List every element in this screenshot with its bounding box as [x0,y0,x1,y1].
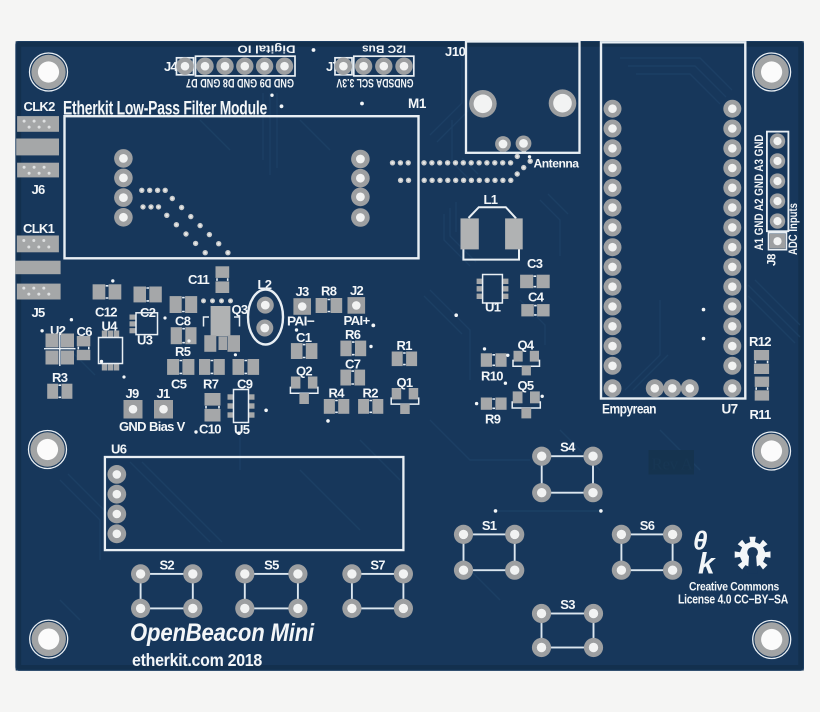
svg-text:R4: R4 [329,386,346,401]
svg-text:CLK2: CLK2 [24,99,56,114]
svg-text:M1: M1 [408,96,427,111]
svg-text:C8: C8 [175,314,191,329]
svg-text:R11: R11 [750,407,772,422]
svg-text:License 4.0 CC−BY−SA: License 4.0 CC−BY−SA [678,592,788,606]
svg-text:U1: U1 [485,300,501,315]
svg-text:C11: C11 [188,272,210,287]
svg-text:U6: U6 [111,442,127,457]
svg-text:J5: J5 [32,305,46,320]
svg-text:R2: R2 [363,386,379,401]
svg-text:Antenna: Antenna [534,157,580,171]
svg-text:Rev A: Rev A [652,455,694,474]
svg-text:GNDSDA SCL 3.3V: GNDSDA SCL 3.3V [337,76,414,90]
svg-text:R6: R6 [345,327,361,342]
svg-text:J1: J1 [157,386,171,401]
svg-text:Creative Commons: Creative Commons [689,579,780,593]
svg-text:R9: R9 [485,412,501,427]
svg-text:k: k [698,548,716,581]
svg-text:PAI+: PAI+ [344,313,371,328]
svg-text:CLK1: CLK1 [23,221,55,236]
svg-text:R3: R3 [52,370,68,385]
svg-text:GND: GND [119,419,146,434]
svg-text:J10: J10 [445,44,466,59]
svg-text:S5: S5 [264,558,279,573]
svg-text:C7: C7 [345,356,361,371]
svg-text:J3: J3 [296,284,310,299]
svg-text:U5: U5 [234,422,250,437]
svg-text:J9: J9 [126,386,140,401]
svg-text:I2C Bus: I2C Bus [362,43,406,55]
svg-text:Q5: Q5 [518,378,534,393]
svg-text:J2: J2 [350,283,364,298]
svg-text:S4: S4 [560,440,576,455]
svg-text:C5: C5 [171,377,187,392]
svg-text:A1 GND A2 GND A3 GND: A1 GND A2 GND A3 GND [754,135,766,251]
svg-text:S2: S2 [159,558,174,573]
svg-text:R7: R7 [203,377,219,392]
svg-text:PAI−: PAI− [287,314,315,329]
svg-text:C1: C1 [296,330,312,345]
svg-text:ADC Inputs: ADC Inputs [788,203,800,255]
svg-text:J6: J6 [32,182,46,197]
svg-text:Q2: Q2 [296,364,312,379]
svg-text:Digital IO: Digital IO [237,43,296,55]
svg-text:S1: S1 [482,518,497,533]
svg-text:Bias V: Bias V [149,419,186,434]
svg-text:R5: R5 [175,344,191,359]
svg-text:OpenBeacon Mini: OpenBeacon Mini [130,619,315,647]
svg-text:etherkit.com 2018: etherkit.com 2018 [132,650,263,670]
svg-text:C4: C4 [528,290,545,305]
svg-text:R8: R8 [321,284,337,299]
svg-text:Q4: Q4 [518,338,535,353]
svg-text:GND D9 GND D8 GND D7: GND D9 GND D8 GND D7 [186,76,294,90]
svg-text:J8: J8 [767,253,779,266]
svg-text:Q1: Q1 [397,375,413,390]
svg-text:U7: U7 [722,401,738,416]
svg-text:C10: C10 [199,422,221,437]
svg-text:Q3: Q3 [232,302,248,317]
svg-text:R1: R1 [397,338,413,353]
svg-text:R12: R12 [749,334,771,349]
svg-text:S6: S6 [640,518,655,533]
svg-text:S3: S3 [560,597,575,612]
svg-text:C3: C3 [527,256,543,271]
svg-text:C12: C12 [95,305,117,320]
svg-text:L1: L1 [484,192,498,207]
svg-text:Empyrean: Empyrean [602,401,656,416]
svg-text:R10: R10 [481,369,503,384]
svg-text:S7: S7 [370,558,385,573]
